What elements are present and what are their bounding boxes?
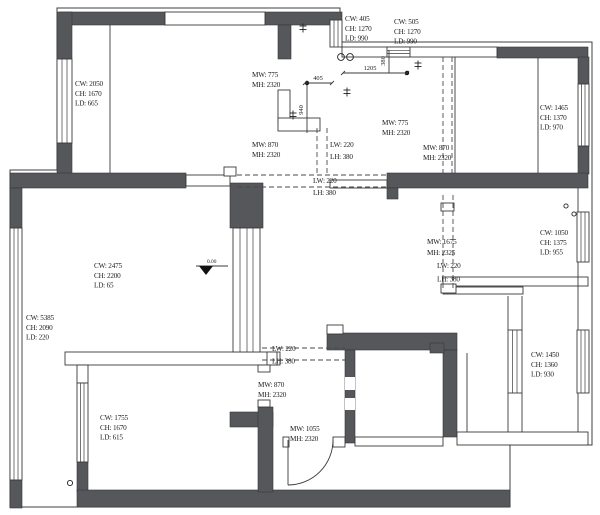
door-jamb xyxy=(258,365,270,372)
wall-segment xyxy=(10,173,186,188)
wall-segment xyxy=(57,143,72,177)
label-window-right-1: CW: 1050 CH: 1375 LD: 955 xyxy=(540,229,570,257)
wall-segment xyxy=(77,462,88,492)
floor-plan-svg: 405 940 1205 380 0.00 CW: 2050 CH: 1670 … xyxy=(0,0,600,515)
label-door-kitchen-1: MW: 775 MH: 2320 xyxy=(252,71,281,89)
annotation-labels: CW: 2050 CH: 1670 LD: 665 CW: 405 CH: 12… xyxy=(26,15,570,443)
partition xyxy=(342,47,497,57)
dim-1205: 1205 xyxy=(364,65,377,72)
wall-slot xyxy=(345,398,355,410)
window-right-CW1050 xyxy=(577,212,589,262)
door-jamb xyxy=(258,400,270,407)
wall-notch xyxy=(327,325,343,334)
wall-segment xyxy=(443,350,457,437)
partition xyxy=(278,118,320,131)
door-arc xyxy=(288,440,333,485)
label-window-left: CW: 5385 CH: 2090 LD: 220 xyxy=(26,314,56,342)
partition xyxy=(355,437,443,446)
wall-segment xyxy=(430,343,444,353)
window-kitchen-CW505 xyxy=(387,47,410,57)
label-door-main-2: MW: 870 MH: 2320 xyxy=(423,144,452,162)
window-top-left-CW2050 xyxy=(57,59,72,143)
label-window-top-left: CW: 2050 CH: 1670 LD: 665 xyxy=(75,80,105,108)
wall-notch xyxy=(224,167,236,176)
pipe-icon xyxy=(572,212,576,216)
label-balcony-door: CW: 2475 CH: 2200 LD: 65 xyxy=(94,262,124,290)
window-kitchen-CW405 xyxy=(330,20,342,47)
floor-plan-page: 405 940 1205 380 0.00 CW: 2050 CH: 1670 … xyxy=(0,0,600,515)
label-door-main-1: MW: 870 MH: 2320 xyxy=(252,141,281,159)
entry-door xyxy=(288,440,333,485)
wall-segment xyxy=(578,57,589,84)
label-window-bottom-left: CW: 1755 CH: 1670 LD: 615 xyxy=(100,414,130,442)
fixture-symbol-icon xyxy=(415,61,422,70)
wall-segment xyxy=(278,25,291,59)
label-window-kitchen-1: CW: 405 CH: 1270 LD: 990 xyxy=(345,15,373,43)
partition xyxy=(457,432,588,445)
partition xyxy=(443,277,588,286)
beam-dashed-lines xyxy=(237,57,453,360)
wall-segment xyxy=(60,12,165,25)
window-bottom-left-CW1755 xyxy=(77,383,88,462)
wall-segment xyxy=(345,350,355,443)
wall-opening xyxy=(186,175,230,186)
window-bottom-right-inner-CW1450 xyxy=(508,330,522,393)
label-window-bottom-right: CW: 1450 CH: 1360 LD: 930 xyxy=(531,351,561,379)
window-left-CW5385 xyxy=(10,228,22,480)
level-triangle-icon xyxy=(199,266,213,275)
wall-segment xyxy=(578,146,589,174)
label-door-entry: MW: 1055 MH: 2320 xyxy=(290,425,321,443)
dim-405: 405 xyxy=(313,75,323,82)
label-beam-v1: LW: 220 LH: 380 xyxy=(330,141,355,161)
wall-segment xyxy=(497,47,588,58)
door-jamb xyxy=(333,437,345,447)
balcony-glass-CW2475 xyxy=(233,228,260,352)
wall-segment xyxy=(387,173,588,188)
wall-slot xyxy=(345,377,355,390)
wall-segment xyxy=(57,12,72,59)
wall-segment xyxy=(10,480,22,508)
dim-940: 940 xyxy=(298,105,305,115)
wall-segment xyxy=(387,188,398,199)
window-plain xyxy=(165,12,265,25)
label-door-kitchen-2: MW: 775 MH: 2320 xyxy=(382,119,411,137)
drain-icon xyxy=(67,480,72,485)
window-top-right-CW1465 xyxy=(578,84,589,146)
label-beam-right: LW: 220 LH: 380 xyxy=(437,262,462,284)
partition xyxy=(65,352,280,365)
wall-segment xyxy=(10,188,22,228)
window-bottom-right-outer-CW1450 xyxy=(577,330,589,393)
label-window-top-right: CW: 1465 CH: 1370 LD: 970 xyxy=(540,104,570,132)
fixture-symbols xyxy=(67,24,576,486)
wall-segment xyxy=(230,183,263,228)
label-door-bottom-left: MW: 870 MH: 2320 xyxy=(258,381,287,399)
partition xyxy=(77,365,88,383)
fixture-symbol-icon xyxy=(344,88,351,97)
label-window-kitchen-2: CW: 505 CH: 1270 LD: 990 xyxy=(394,18,422,46)
pipe-icon xyxy=(564,204,568,208)
dim-380: 380 xyxy=(380,56,387,66)
wall-segment xyxy=(77,490,510,507)
wall-segment xyxy=(258,407,273,492)
level-benchmark: 0.00 xyxy=(196,259,228,275)
level-value: 0.00 xyxy=(207,259,217,265)
